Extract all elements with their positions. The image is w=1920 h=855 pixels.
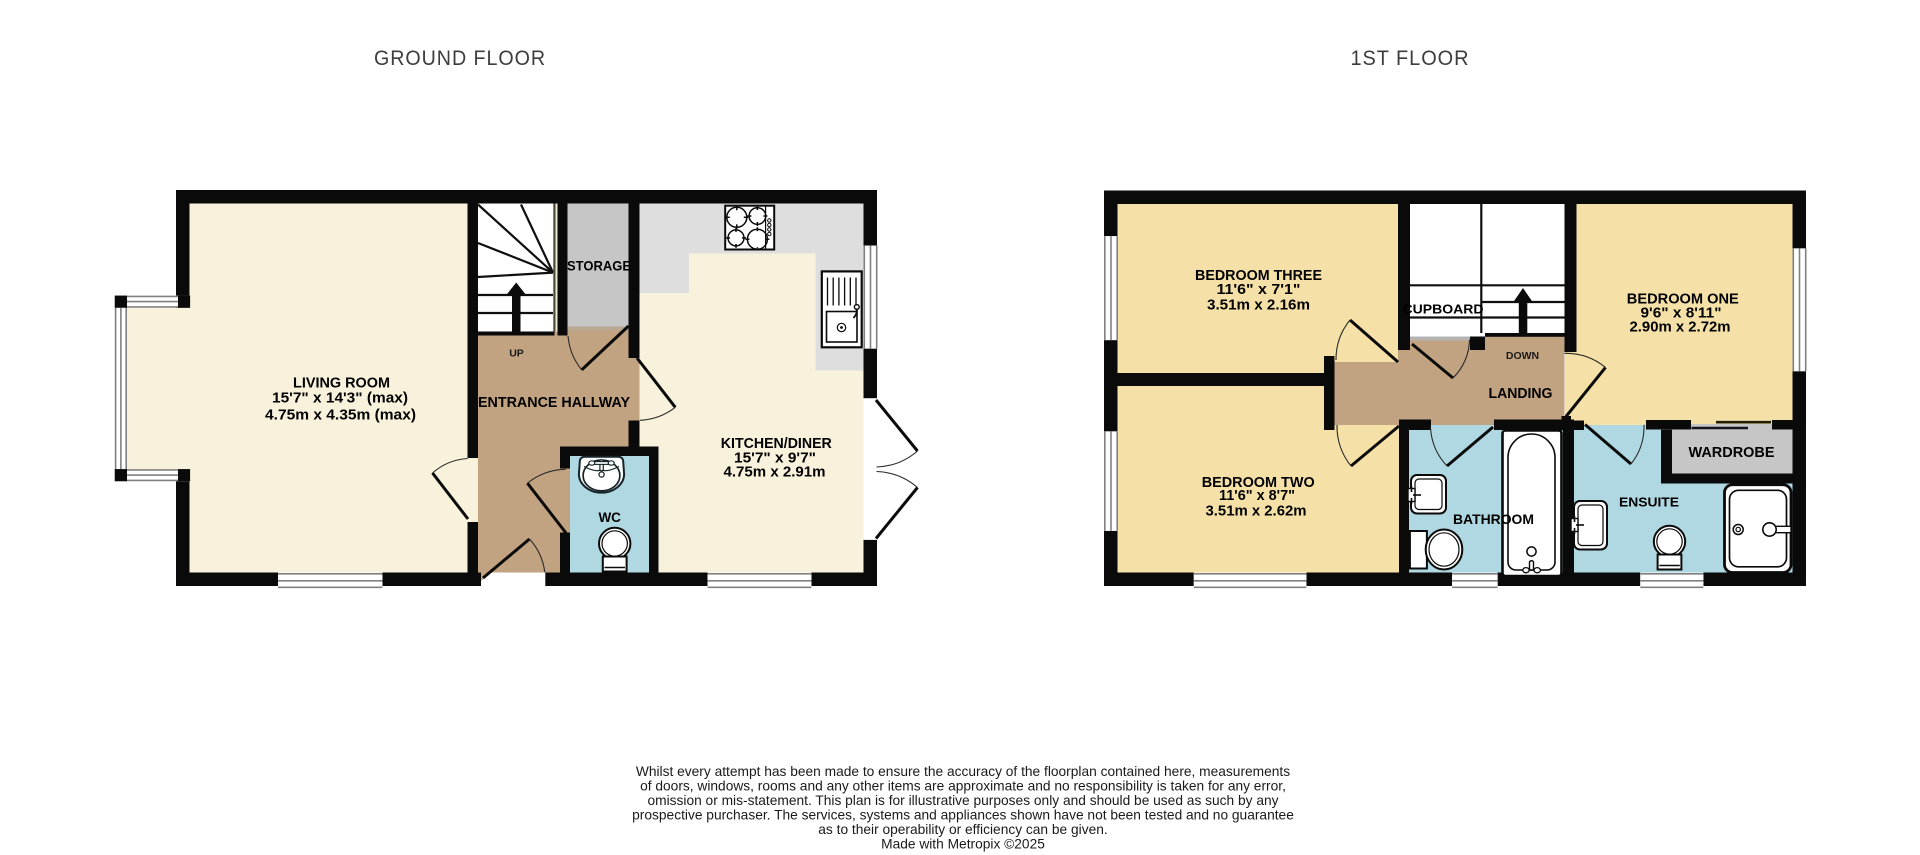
svg-text:11'6" x 8'7": 11'6" x 8'7"	[1219, 488, 1295, 504]
svg-text:1ST FLOOR: 1ST FLOOR	[1351, 47, 1470, 70]
svg-text:4.75m x 2.91m: 4.75m x 2.91m	[724, 465, 826, 481]
svg-text:Whilst every attempt has been: Whilst every attempt has been made to en…	[636, 764, 1290, 779]
svg-text:STORAGE: STORAGE	[567, 258, 631, 274]
svg-text:WC: WC	[598, 510, 621, 525]
svg-text:UP: UP	[509, 348, 524, 360]
svg-text:prospective purchaser. The ser: prospective purchaser. The services, sys…	[632, 808, 1294, 823]
svg-text:Made with Metropix ©2025: Made with Metropix ©2025	[881, 837, 1045, 852]
svg-text:ENSUITE: ENSUITE	[1619, 495, 1679, 510]
svg-text:4.75m x 4.35m (max): 4.75m x 4.35m (max)	[265, 408, 416, 424]
svg-text:15'7" x 14'3" (max): 15'7" x 14'3" (max)	[272, 391, 408, 407]
svg-text:2.90m x 2.72m: 2.90m x 2.72m	[1630, 320, 1731, 336]
svg-text:3.51m x 2.62m: 3.51m x 2.62m	[1206, 504, 1307, 520]
svg-text:WARDROBE: WARDROBE	[1689, 445, 1775, 461]
svg-text:as to their operability or eff: as to their operability or efficiency ca…	[818, 822, 1107, 837]
svg-text:GROUND FLOOR: GROUND FLOOR	[374, 47, 546, 70]
svg-text:11'6" x 7'1": 11'6" x 7'1"	[1217, 282, 1301, 298]
svg-text:3.51m x 2.16m: 3.51m x 2.16m	[1207, 298, 1310, 314]
svg-text:omission or mis-statement. Thi: omission or mis-statement. This plan is …	[647, 793, 1278, 808]
svg-text:LIVING ROOM: LIVING ROOM	[293, 376, 390, 392]
svg-text:of doors, windows, rooms and a: of doors, windows, rooms and any other i…	[640, 779, 1286, 794]
svg-text:LANDING: LANDING	[1489, 386, 1553, 402]
svg-text:BATHROOM: BATHROOM	[1453, 511, 1534, 527]
svg-text:DOWN: DOWN	[1506, 350, 1539, 362]
svg-text:ENTRANCE HALLWAY: ENTRANCE HALLWAY	[478, 395, 630, 411]
svg-text:CUPBOARD: CUPBOARD	[1403, 303, 1484, 317]
